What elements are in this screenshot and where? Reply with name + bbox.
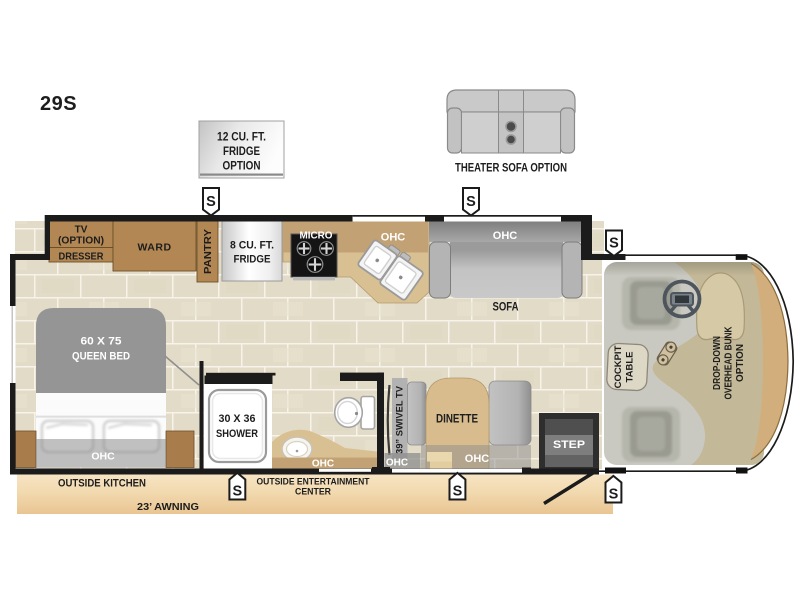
svg-text:THEATER SOFA OPTION: THEATER SOFA OPTION — [455, 163, 567, 175]
svg-text:OPTION: OPTION — [223, 159, 261, 173]
svg-text:29S: 29S — [40, 93, 77, 115]
svg-text:OHC: OHC — [386, 458, 408, 469]
svg-text:S: S — [466, 194, 476, 210]
svg-text:12 CU. FT.: 12 CU. FT. — [217, 130, 266, 144]
svg-text:OHC: OHC — [381, 232, 406, 244]
svg-text:OHC: OHC — [312, 459, 334, 470]
svg-text:S: S — [453, 484, 463, 500]
svg-text:TV: TV — [75, 225, 88, 236]
svg-text:WARD: WARD — [137, 242, 171, 254]
svg-text:30 X 36: 30 X 36 — [219, 413, 256, 425]
svg-text:8 CU. FT.: 8 CU. FT. — [230, 240, 274, 252]
svg-text:OHC: OHC — [465, 453, 490, 465]
svg-text:OVERHEAD BUNK: OVERHEAD BUNK — [724, 326, 735, 400]
svg-text:OPTION: OPTION — [735, 344, 746, 382]
svg-text:S: S — [609, 236, 619, 252]
svg-text:S: S — [206, 194, 216, 210]
svg-text:DROP-DOWN: DROP-DOWN — [712, 336, 723, 390]
svg-text:FRIDGE: FRIDGE — [234, 254, 271, 266]
svg-text:SOFA: SOFA — [493, 302, 519, 314]
svg-text:23’ AWNING: 23’ AWNING — [137, 501, 199, 513]
svg-text:QUEEN BED: QUEEN BED — [72, 351, 130, 363]
svg-text:DINETTE: DINETTE — [436, 412, 478, 426]
svg-text:STEP: STEP — [553, 439, 585, 451]
svg-text:60 X 75: 60 X 75 — [81, 336, 122, 348]
svg-text:DRESSER: DRESSER — [59, 252, 105, 263]
svg-text:PANTRY: PANTRY — [202, 229, 214, 274]
svg-text:MICRO: MICRO — [300, 231, 333, 242]
svg-text:OUTSIDE ENTERTAINMENT: OUTSIDE ENTERTAINMENT — [257, 477, 370, 487]
svg-text:FRIDGE: FRIDGE — [223, 144, 260, 158]
svg-text:OUTSIDE KITCHEN: OUTSIDE KITCHEN — [58, 478, 146, 490]
svg-text:OHC: OHC — [493, 230, 518, 242]
svg-text:CENTER: CENTER — [295, 487, 331, 497]
svg-text:OHC: OHC — [91, 451, 115, 463]
svg-text:COCKPIT: COCKPIT — [613, 345, 624, 388]
svg-text:39” SWIVEL TV: 39” SWIVEL TV — [395, 386, 405, 454]
svg-text:S: S — [232, 484, 242, 500]
svg-text:TABLE: TABLE — [625, 352, 636, 383]
svg-text:(OPTION): (OPTION) — [58, 236, 104, 247]
svg-text:SHOWER: SHOWER — [216, 428, 258, 440]
svg-text:S: S — [609, 487, 619, 503]
